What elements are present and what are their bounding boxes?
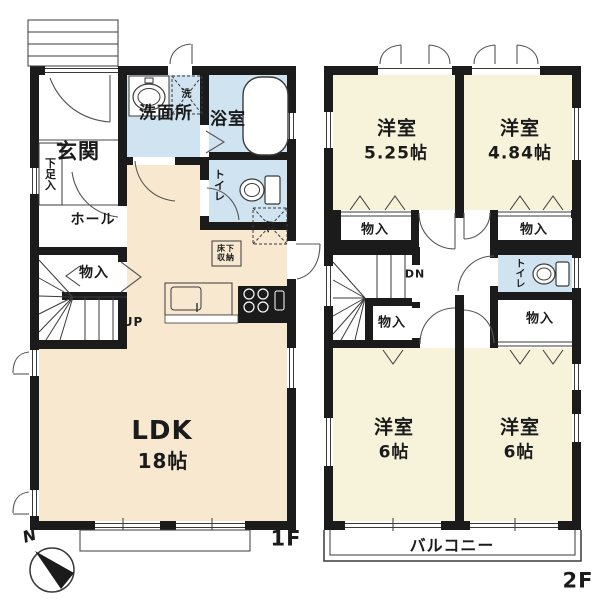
room-label-shoe-box: 下足入 xyxy=(45,158,56,191)
room-label-toilet-1f: トイレ xyxy=(214,169,225,202)
floorplan-svg xyxy=(0,0,600,600)
room-label-closet-tr: 物入 xyxy=(520,224,548,237)
room-label-bedroom2: 洋室 xyxy=(500,120,540,139)
toilet-icon-2f xyxy=(533,262,569,286)
room-label-closet-c: 物入 xyxy=(378,317,406,330)
bathtub-icon xyxy=(243,77,288,155)
room-label-bedroom1: 洋室 xyxy=(377,120,417,139)
entrance-steps xyxy=(28,20,118,66)
room-label-balcony: バルコニー xyxy=(410,538,495,554)
stairs-down-label: DN xyxy=(405,269,425,280)
stairs-up-label: UP xyxy=(123,316,144,328)
floor2-top-windows xyxy=(380,45,538,64)
room-label-bedroom3: 洋室 xyxy=(374,419,414,438)
room-size-bedroom2: 4.84帖 xyxy=(488,146,552,163)
laundry-label: 洗 xyxy=(182,90,193,100)
room-size-ldk: 18帖 xyxy=(138,451,189,471)
floor2-tag: 2F xyxy=(563,571,594,592)
room-label-toilet-2f: トイレ xyxy=(513,258,523,288)
room-label-bedroom4: 洋室 xyxy=(500,419,540,438)
room-size-bedroom3: 6帖 xyxy=(379,445,410,462)
room-label-hall: ホール xyxy=(71,213,116,227)
room-label-entrance: 玄関 xyxy=(56,142,100,163)
room-size-bedroom1: 5.25帖 xyxy=(364,146,428,163)
kitchen-counter xyxy=(165,283,238,323)
room-size-bedroom4: 6帖 xyxy=(504,445,535,462)
floorplan-canvas: 玄関 下足入 ホール 物入 UP 洗面所 洗 浴室 トイレ 床下 収納 冷 LD… xyxy=(0,0,600,600)
room-label-closet-tl: 物入 xyxy=(361,224,389,237)
room-label-washroom: 洗面所 xyxy=(139,106,193,123)
room-label-bathroom: 浴室 xyxy=(210,112,246,129)
floor1-tag: 1F xyxy=(271,529,302,550)
stove-icon xyxy=(238,286,287,315)
room-label-closet-1f: 物入 xyxy=(79,266,109,280)
compass xyxy=(30,548,74,592)
terrace xyxy=(80,530,250,551)
room-label-ldk: LDK xyxy=(131,418,192,444)
underfloor-label-2: 収納 xyxy=(217,254,235,262)
underfloor-label-1: 床下 xyxy=(217,245,235,253)
room-label-closet-br: 物入 xyxy=(526,313,554,326)
